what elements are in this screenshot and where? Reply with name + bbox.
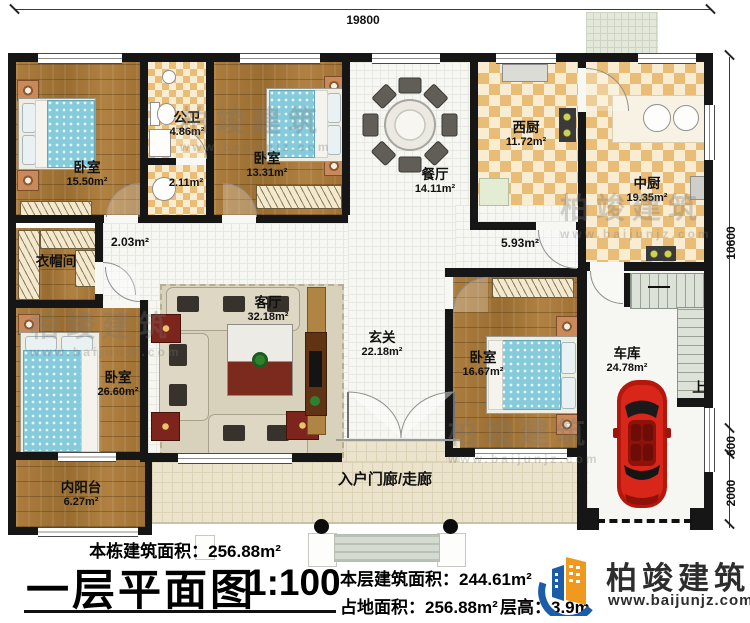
kitchen-sink-icon [502, 64, 548, 82]
plan-scale: 1:100 [246, 562, 341, 604]
window [704, 408, 715, 472]
room-label-porch: 入户门廊/走廊 [310, 471, 460, 488]
title-underline [24, 610, 336, 613]
wall [470, 53, 478, 230]
wall [8, 53, 16, 535]
room-label-foyer: 玄关22.18m² [342, 330, 422, 358]
window [372, 53, 440, 64]
window [496, 53, 556, 64]
dining-table-icon [360, 75, 460, 175]
window [38, 53, 122, 64]
door-opening [445, 277, 453, 309]
nightstand-icon [17, 170, 39, 191]
wall [577, 268, 587, 522]
dimension-line-top [14, 9, 712, 10]
bed-blanket [23, 350, 83, 452]
door-opening [590, 262, 624, 271]
porch-column [314, 519, 329, 534]
window [240, 53, 320, 64]
dimension-right-value: 2000 [724, 468, 738, 518]
side-table-icon [151, 412, 180, 441]
wardrobe-icon [256, 185, 342, 209]
wall [145, 453, 152, 535]
room-label-bedroom-se: 卧室16.67m² [443, 350, 523, 378]
plant-icon [252, 352, 268, 368]
entry-steps [334, 534, 440, 562]
plant-icon [310, 396, 320, 406]
coffee-table-icon [227, 324, 293, 396]
floor-plan-page: 卧室15.50m² 公卫4.86m² 2.11m² 卧室13.31m² 餐厅14… [0, 0, 750, 623]
car-icon [611, 378, 673, 510]
room-label-west-kitchen: 西厨11.72m² [486, 120, 566, 148]
plan-title: 一层平面图 [26, 556, 256, 618]
door-opening [95, 262, 103, 294]
stove-icon [646, 246, 676, 261]
sliding-door [58, 452, 116, 462]
land-area: 占地面积：256.88m² [340, 593, 498, 618]
pillow-icon [22, 135, 36, 165]
watermark: 柏竣建筑www.baijunjz.com [180, 98, 332, 154]
bed-blanket [47, 100, 95, 168]
wall [140, 53, 148, 223]
wall [342, 53, 350, 215]
room-label-bedroom-nw: 卧室15.50m² [47, 160, 127, 188]
room-label-bath-small: 2.11m² [156, 177, 216, 190]
watermark: 柏竣建筑www.baijunjz.com [560, 185, 712, 241]
pillow-icon [561, 342, 576, 374]
brand-logo-icon [538, 550, 602, 616]
room-label-hall-east: 5.93m² [490, 237, 550, 251]
round-sink-icon [673, 105, 699, 131]
window [178, 453, 292, 464]
room-label-bedroom-sw: 卧室26.60m² [78, 370, 158, 398]
wall [148, 158, 176, 165]
round-sink-icon [643, 104, 671, 132]
wardrobe-icon [40, 230, 97, 249]
porch-door-recess [336, 441, 460, 462]
bed-sheet [81, 350, 98, 452]
cabinet-icon [479, 178, 509, 206]
floor-area: 本层建筑面积：244.61m² [340, 565, 532, 590]
pillow-icon [22, 103, 36, 133]
room-label-garage: 车库24.78m² [587, 346, 667, 374]
window [638, 53, 696, 64]
porch-column [443, 519, 458, 534]
garage-door-post [690, 508, 713, 530]
door-opening [176, 158, 206, 165]
column-base [437, 533, 466, 567]
hedge-block [586, 12, 658, 53]
wardrobe-icon [492, 278, 574, 298]
tv-icon [309, 351, 322, 387]
wall [16, 215, 348, 223]
door-opening [578, 68, 586, 112]
brand-site: www.baijunjz.com [608, 592, 750, 609]
shower-icon [162, 70, 176, 84]
room-label-hall-west: 2.03m² [100, 236, 160, 250]
porch-edge-line [152, 522, 588, 524]
room-label-living: 客厅32.18m² [228, 295, 308, 323]
nightstand-icon [556, 316, 578, 337]
window [38, 527, 138, 537]
dimension-right-value: 600 [724, 426, 738, 466]
window [704, 105, 715, 160]
room-label-balcony: 内阳台6.27m² [41, 480, 121, 508]
room-label-dining: 餐厅14.11m² [395, 167, 475, 195]
stairs-up-label: 上 [690, 380, 708, 396]
entrance-double-door [343, 390, 459, 440]
garage-door-post [577, 508, 599, 530]
dimension-right-value: 10600 [724, 213, 738, 273]
stair-direction-arrow [648, 286, 670, 288]
room-label-cloakroom: 衣帽间 [20, 254, 92, 270]
room-label-bedroom-n: 卧室13.31m² [227, 151, 307, 179]
stairs-icon [630, 273, 706, 309]
pillow-icon [561, 377, 576, 409]
watermark: 柏竣建筑www.baijunjz.com [448, 410, 600, 466]
watermark: 柏竣建筑www.baijunjz.com [30, 303, 182, 359]
garage-door-dashed [597, 519, 692, 523]
dimension-top-value: 19800 [338, 13, 388, 27]
stair-wall-stub [624, 273, 630, 307]
wall [445, 268, 585, 277]
